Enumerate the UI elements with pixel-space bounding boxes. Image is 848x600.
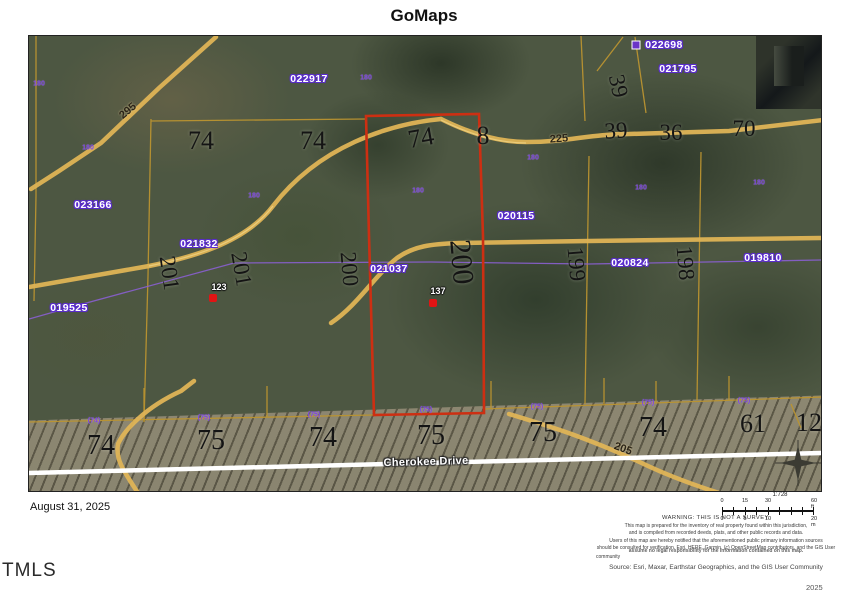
year-label: 2025 [806, 583, 823, 592]
road-name-label: 225 [549, 132, 568, 145]
dimension-label: 180 [33, 81, 45, 88]
gomaps-printout-page: GoMaps [0, 0, 848, 600]
lot-number-label: 198 [671, 245, 700, 282]
address-point-dot[interactable] [209, 294, 217, 302]
dimension-label: (75) [420, 407, 432, 414]
parcel-id-label: 021832 [180, 238, 217, 250]
dimension-label: (75) [642, 400, 654, 407]
parcel-id-label: 019810 [744, 252, 781, 264]
parcel-id-label: 020824 [611, 257, 648, 269]
address-point-label: 137 [430, 286, 445, 296]
overlapping-attribution-lines: should be consulted for verification. Es… [580, 545, 848, 554]
parcel-id-label: 019525 [50, 302, 87, 314]
address-point-label: 123 [211, 282, 226, 292]
disclaimer-line: Users of this map are hereby notified th… [580, 538, 848, 546]
dimension-label: 180 [635, 185, 647, 192]
lot-number-label: 75 [529, 417, 557, 449]
lot-number-label: 39 [603, 72, 633, 100]
parcel-id-label: 023166 [74, 199, 111, 211]
lot-number-label: 61 [740, 409, 766, 439]
scale-tick-label: 30 [765, 498, 771, 504]
road-name-label: 295 [117, 101, 139, 122]
parcel-flag-icon [632, 41, 641, 50]
lot-number-label: 75 [417, 420, 445, 452]
disclaimer-line: This map is prepared for the inventory o… [580, 523, 848, 531]
map-label-layer: 0226980217950229170231660218320195250210… [29, 36, 821, 491]
parcel-id-label: 022917 [290, 73, 327, 85]
lot-number-label: 200 [335, 251, 364, 288]
road-name-label: Cherokee Drive [383, 455, 468, 469]
disclaimer-line: and is compiled from recorded deeds, pla… [580, 530, 848, 538]
parcel-id-label: 021795 [659, 63, 696, 75]
page-title: GoMaps [0, 6, 848, 26]
lot-number-label: 74 [406, 121, 437, 155]
parcel-map-canvas[interactable]: 0226980217950229170231660218320195250210… [28, 35, 822, 492]
disclaimer-line: community [596, 554, 848, 562]
parcel-id-label: 020115 [498, 210, 535, 222]
road-name-label: 205 [612, 440, 633, 458]
imagery-source-line: Source: Esri, Maxar, Earthstar Geographi… [580, 563, 848, 573]
dimension-label: (74) [88, 418, 100, 425]
lot-number-label: 70 [733, 116, 756, 142]
dimension-label: (75) [308, 412, 320, 419]
tmls-watermark: TMLS [2, 560, 57, 582]
map-date-label: August 31, 2025 [30, 501, 110, 513]
lot-number-label: 199 [562, 246, 591, 283]
lot-number-label: 12 [796, 408, 822, 438]
parcel-id-label: 021037 [370, 263, 407, 275]
scale-tick-label: 0 [720, 498, 723, 504]
warning-line: WARNING: THIS IS NOT A SURVEY. [580, 514, 848, 523]
disclaimer-block: WARNING: THIS IS NOT A SURVEY. This map … [580, 514, 848, 572]
dimension-label: 180 [412, 188, 424, 195]
address-point-dot[interactable] [429, 299, 437, 307]
dimension-label: 180 [82, 145, 94, 152]
lot-number-label: 74 [639, 412, 667, 444]
dimension-label: 180 [248, 193, 260, 200]
lot-number-label: 75 [197, 425, 225, 457]
dimension-label: (75) [531, 404, 543, 411]
lot-number-label: 39 [604, 117, 629, 145]
dimension-label: 180 [360, 75, 372, 82]
lot-number-label: 74 [87, 430, 115, 462]
scale-ft-labels: 0153060 ft [722, 498, 814, 505]
lot-number-label: 201 [225, 250, 257, 288]
dimension-label: (75) [738, 398, 750, 405]
lot-number-label: 74 [188, 126, 214, 156]
lot-number-label: 74 [300, 126, 326, 156]
lot-number-label: 8 [477, 121, 490, 151]
lot-number-label: 74 [309, 422, 337, 454]
dimension-label: 180 [527, 155, 539, 162]
dimension-label: 180 [753, 180, 765, 187]
lot-number-label: 200 [442, 238, 480, 286]
dimension-label: (75) [198, 415, 210, 422]
lot-number-label: 201 [154, 254, 185, 292]
lot-number-label: 36 [660, 120, 683, 146]
parcel-id-label: 022698 [645, 39, 682, 51]
scale-tick-label: 15 [742, 498, 748, 504]
